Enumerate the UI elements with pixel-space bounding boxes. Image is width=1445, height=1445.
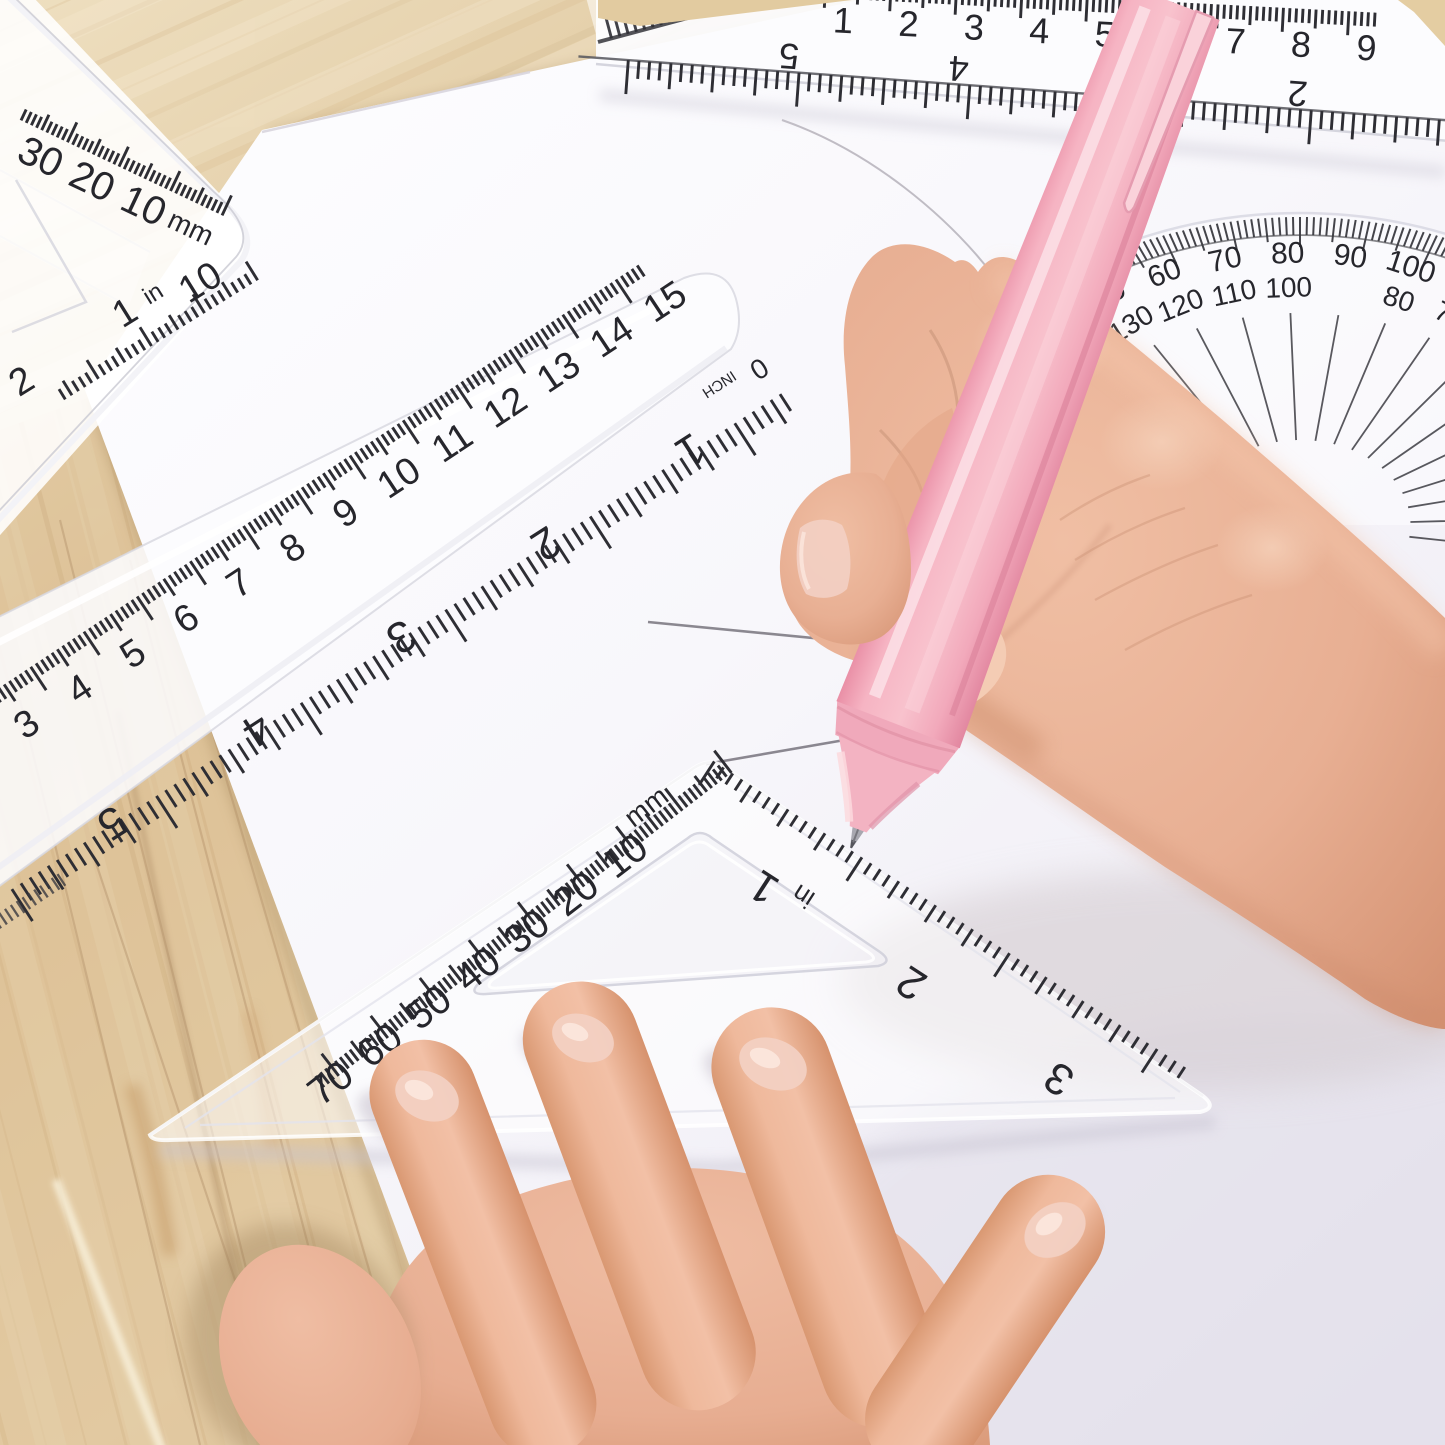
svg-text:90: 90: [1332, 238, 1370, 275]
svg-text:2: 2: [1286, 73, 1309, 115]
svg-text:2: 2: [898, 3, 920, 45]
svg-text:70: 70: [1205, 240, 1245, 279]
svg-text:3: 3: [963, 6, 985, 48]
svg-text:9: 9: [1355, 27, 1377, 69]
svg-text:4: 4: [1028, 10, 1050, 52]
svg-text:1: 1: [832, 0, 854, 41]
svg-text:100: 100: [1265, 271, 1313, 304]
svg-text:7: 7: [1225, 20, 1247, 62]
svg-text:8: 8: [1290, 23, 1312, 65]
svg-text:80: 80: [1270, 236, 1305, 270]
svg-text:5: 5: [778, 35, 801, 77]
svg-text:4: 4: [947, 48, 970, 90]
